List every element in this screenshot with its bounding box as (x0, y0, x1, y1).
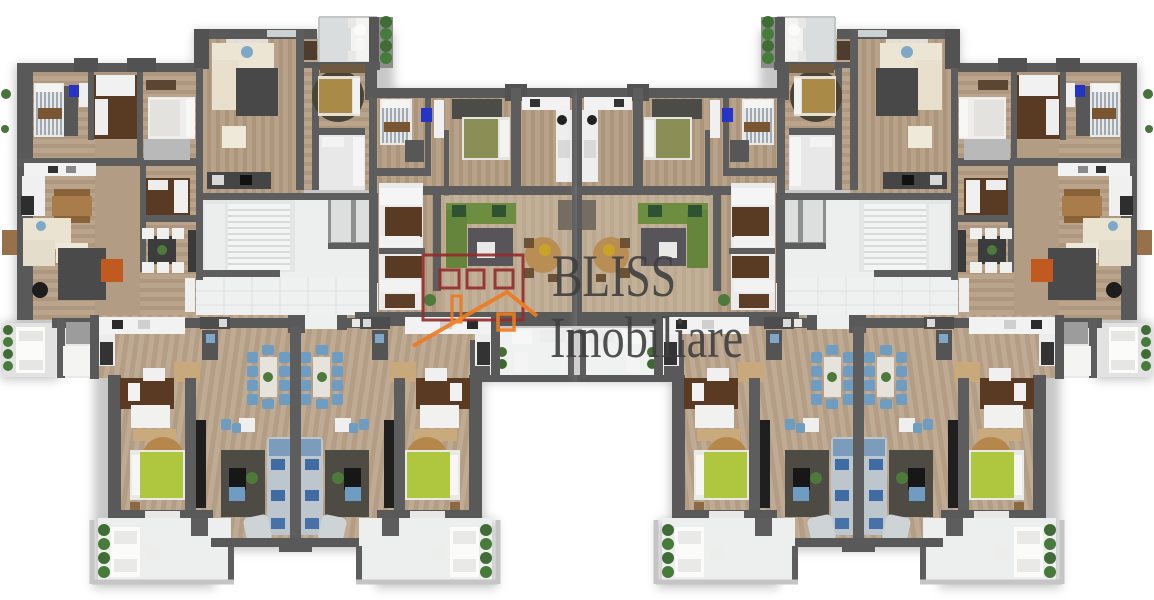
svg-text:Imobiliare: Imobiliare (550, 306, 743, 370)
svg-text:BLISS: BLISS (552, 243, 676, 309)
